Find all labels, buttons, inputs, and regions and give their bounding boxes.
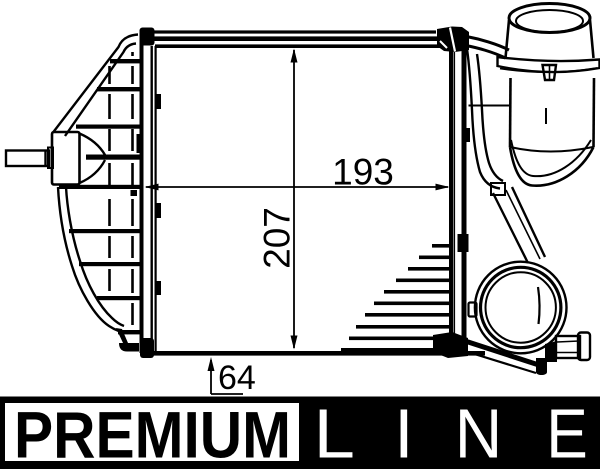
svg-text:193: 193	[332, 152, 394, 193]
svg-text:N: N	[455, 396, 503, 469]
svg-text:L: L	[314, 395, 355, 469]
svg-text:I: I	[394, 395, 413, 469]
svg-text:E: E	[546, 395, 588, 469]
svg-text:PREMIUM: PREMIUM	[14, 398, 291, 469]
svg-text:64: 64	[218, 359, 256, 397]
svg-text:207: 207	[257, 207, 298, 269]
